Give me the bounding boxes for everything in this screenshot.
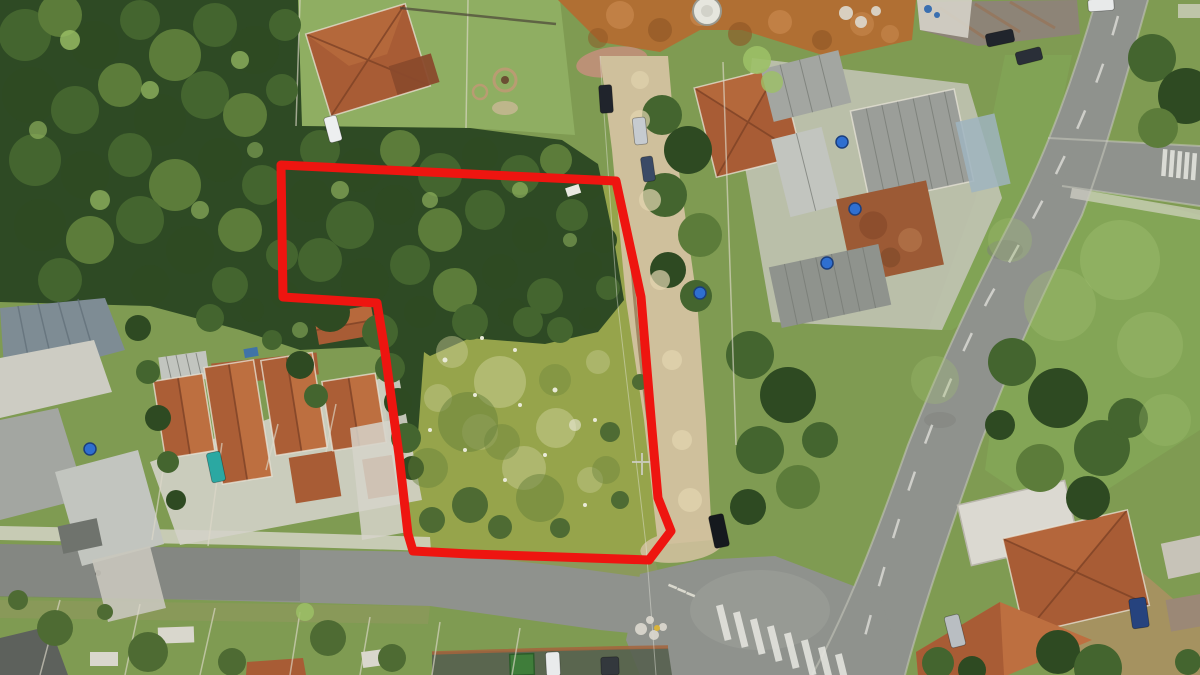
terrain-blob [662, 350, 682, 370]
terrain-blob [761, 71, 783, 93]
water-tank [849, 203, 861, 215]
terrain-blob [218, 208, 262, 252]
terrain-blob [513, 348, 517, 352]
terrain-blob [1080, 220, 1160, 300]
terrain-blob [242, 165, 282, 205]
terrain-blob [1016, 444, 1064, 492]
terrain-blob [563, 233, 577, 247]
aerial-photo [0, 0, 1200, 675]
terrain-blob [120, 0, 160, 40]
debris [924, 5, 932, 13]
debris [654, 625, 660, 631]
terrain-blob [375, 185, 415, 225]
terrain-blob [988, 218, 1032, 262]
townhouse-extension-roof [289, 451, 342, 504]
terrain-blob [743, 46, 771, 74]
terrain-blob [2, 67, 58, 123]
terrain-blob [218, 648, 246, 675]
terrain-blob [512, 217, 548, 253]
terrain-blob [240, 298, 264, 322]
terrain-blob [462, 137, 498, 173]
road-patch [924, 412, 956, 428]
terrain-blob [98, 63, 142, 107]
terrain-blob [664, 126, 712, 174]
terrain-blob [1066, 476, 1110, 520]
terrain-blob [592, 456, 620, 484]
terrain-blob [198, 138, 242, 182]
debris [871, 6, 881, 16]
terrain-blob [473, 393, 477, 397]
terrain-blob [60, 30, 80, 50]
terrain-blob [51, 86, 99, 134]
terrain-blob [1036, 630, 1080, 674]
terrain-blob [768, 10, 792, 34]
terrain-blob [288, 178, 332, 222]
terrain-blob [157, 451, 179, 473]
terrain-blob [569, 419, 581, 431]
terrain-blob [196, 304, 224, 332]
terrain-blob [428, 428, 432, 432]
terrain-blob [97, 604, 113, 620]
terrain-blob [463, 448, 467, 452]
terrain-blob [141, 81, 159, 99]
terrain-blob [418, 208, 462, 252]
car [1128, 597, 1149, 629]
terrain-blob [812, 30, 832, 50]
terrain-blob [422, 192, 438, 208]
debris [659, 623, 667, 631]
terrain-blob [1175, 649, 1200, 675]
terrain-blob [296, 603, 314, 621]
terrain-blob [985, 410, 1015, 440]
water-tank [84, 443, 96, 455]
terrain-blob [543, 453, 547, 457]
terrain-blob [586, 350, 610, 374]
terrain-blob [672, 430, 692, 450]
terrain-blob [304, 384, 328, 408]
terrain-blob [540, 144, 572, 176]
terrain-blob [631, 71, 649, 89]
terrain-blob [550, 518, 570, 538]
terrain-blob [1139, 394, 1191, 446]
terrain-blob [452, 487, 488, 523]
terrain-blob [760, 367, 816, 423]
terrain-blob [482, 254, 518, 290]
garden-dirt-patch [492, 101, 518, 115]
terrain-blob [503, 478, 507, 482]
debris [635, 623, 647, 635]
terrain-blob [286, 351, 314, 379]
terrain-blob [326, 201, 374, 249]
terrain-blob [408, 448, 448, 488]
terrain-blob [480, 336, 484, 340]
terrain-blob [583, 503, 587, 507]
terrain-blob [9, 134, 61, 186]
debris [934, 12, 940, 18]
terrain-blob [802, 422, 838, 458]
terrain-blob [776, 465, 820, 509]
terrain-blob [465, 190, 505, 230]
terrain-blob [556, 199, 588, 231]
terrain-blob [678, 488, 702, 512]
terrain-blob [988, 338, 1036, 386]
terrain-blob [736, 426, 784, 474]
terrain-blob [8, 590, 28, 610]
debris [839, 6, 853, 20]
terrain-blob [128, 632, 168, 672]
debris [646, 616, 654, 624]
terrain-blob [728, 22, 752, 46]
terrain-blob [730, 489, 766, 525]
terrain-blob [298, 238, 342, 282]
terrain-blob [911, 356, 959, 404]
terrain-blob [512, 182, 528, 198]
terrain-blob [881, 25, 899, 43]
terrain-blob [38, 258, 82, 302]
terrain-blob [231, 51, 249, 69]
terrain-blob [145, 405, 171, 431]
terrain-blob [136, 360, 160, 384]
terrain-blob [588, 28, 608, 48]
driveway-pad [1178, 4, 1200, 18]
terrain-blob [166, 226, 214, 274]
car [599, 85, 614, 114]
terrain-blob [166, 490, 186, 510]
terrain-blob [266, 74, 298, 106]
terrain-blob [443, 358, 448, 363]
car [632, 117, 648, 145]
terrain-blob [579, 307, 601, 329]
terrain-blob [516, 474, 564, 522]
terrain-blob [262, 330, 282, 350]
car [545, 652, 560, 675]
terrain-blob [378, 644, 406, 672]
terrain-blob [331, 181, 349, 199]
terrain-blob [553, 388, 558, 393]
water-tank [694, 287, 706, 299]
terrain-blob [648, 18, 672, 42]
terrain-blob [212, 267, 248, 303]
terrain-blob [193, 3, 237, 47]
terrain-blob [14, 199, 66, 251]
terrain-blob [404, 296, 436, 328]
terrain-blob [125, 315, 151, 341]
terrain-blob [390, 245, 430, 285]
terrain-blob [484, 424, 520, 460]
terrain-blob [90, 190, 110, 210]
terrain-blob [606, 1, 634, 29]
terrain-blob [108, 133, 152, 177]
terrain-blob [181, 71, 229, 119]
terrain-blob [650, 270, 670, 290]
terrain-blob [593, 418, 597, 422]
terrain-blob [149, 29, 201, 81]
terrain-blob [678, 213, 722, 257]
terrain-blob [639, 189, 661, 211]
terrain-blob [247, 142, 263, 158]
terrain-blob [310, 620, 346, 656]
terrain-blob [518, 403, 522, 407]
terrain-blob [452, 304, 488, 340]
terrain-blob [269, 9, 301, 41]
terrain-blob [419, 507, 445, 533]
terrain-blob [1024, 269, 1096, 341]
terrain-blob [488, 515, 512, 539]
terrain-blob [513, 307, 543, 337]
car [601, 657, 620, 675]
water-tank-cap [701, 5, 713, 17]
terrain-blob [1138, 108, 1178, 148]
terrain-blob [1117, 312, 1183, 378]
debris [855, 16, 867, 28]
terrain-blob [66, 216, 114, 264]
terrain-blob [1028, 368, 1088, 428]
water-tank [836, 136, 848, 148]
terrain-blob [611, 491, 629, 509]
terrain-blob [116, 196, 164, 244]
terrain-blob [292, 322, 308, 338]
terrain-blob [130, 265, 170, 305]
aerial-photo-canvas [0, 0, 1200, 675]
terrain-blob [380, 130, 420, 170]
terrain-blob [29, 121, 47, 139]
concrete-pad [90, 652, 118, 666]
terrain-blob [223, 93, 267, 137]
terrain-blob [191, 201, 209, 219]
terrain-blob [547, 317, 573, 343]
stone-circle-center [501, 76, 509, 84]
terrain-blob [600, 422, 620, 442]
water-tank [821, 257, 833, 269]
terrain-blob [436, 336, 468, 368]
terrain-blob [574, 252, 602, 280]
terrain-blob [37, 610, 73, 646]
debris [649, 630, 659, 640]
car [1088, 0, 1115, 12]
